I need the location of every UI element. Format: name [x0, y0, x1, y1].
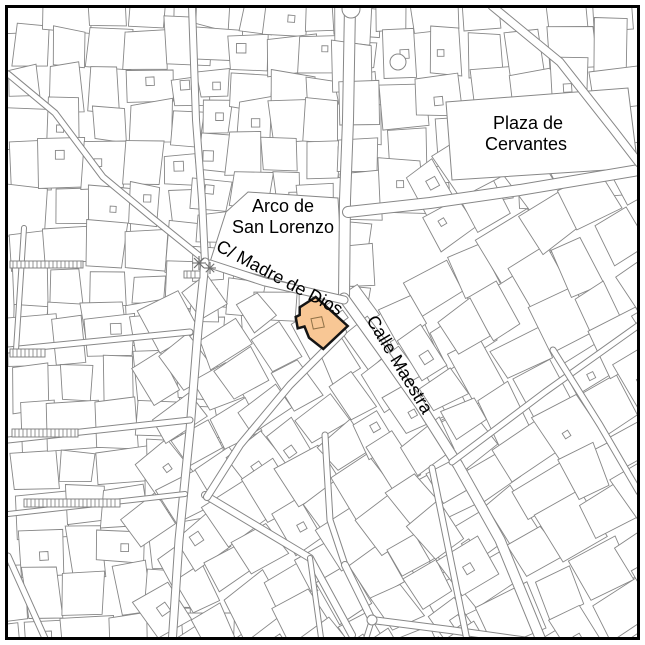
building-parcel: [225, 132, 261, 176]
building-parcel: [261, 137, 298, 171]
plaza-cervantes-label-line1: Plaza de: [493, 113, 563, 133]
building-parcel: [430, 26, 462, 76]
courtyard-detail: [437, 50, 444, 57]
courtyard-detail: [174, 161, 184, 171]
courtyard-detail: [144, 195, 152, 202]
arcade-hatch-strip: [12, 429, 78, 437]
building-parcel: [60, 616, 115, 645]
building-parcel: [0, 623, 22, 645]
courtyard-detail: [468, 0, 475, 4]
map-canvas: Plaza de Cervantes Arco de San Lorenzo C…: [0, 0, 645, 645]
round-building-icon: [390, 54, 406, 70]
courtyard-detail: [614, 0, 622, 1]
courtyard-detail: [180, 80, 190, 90]
courtyard-detail: [148, 0, 159, 6]
courtyard-detail: [434, 96, 443, 105]
building-parcel: [228, 34, 268, 71]
courtyard-detail: [236, 44, 246, 54]
highlighted-parcel-courtyard: [311, 317, 324, 329]
building-parcel: [382, 28, 416, 78]
round-building-icon: [367, 615, 377, 625]
building-parcel: [123, 30, 168, 70]
building-parcel: [86, 220, 128, 269]
building-parcel: [268, 100, 307, 143]
building-parcel: [53, 26, 85, 68]
building-parcel: [60, 365, 93, 401]
building-parcel: [56, 188, 89, 224]
courtyard-detail: [55, 150, 64, 159]
courtyard-detail: [110, 323, 121, 334]
cadastral-map: Plaza de Cervantes Arco de San Lorenzo C…: [0, 0, 645, 645]
building-parcel: [461, 0, 501, 31]
building-parcel: [543, 0, 589, 29]
courtyard-detail: [146, 77, 155, 86]
courtyard-detail: [322, 46, 328, 52]
courtyard-detail: [203, 151, 214, 162]
building-parcel: [129, 98, 172, 142]
building-parcel: [616, 254, 645, 314]
monument-base: [184, 271, 200, 278]
arcade-hatch-strip: [24, 499, 120, 507]
building-parcel: [190, 178, 232, 211]
building-parcel: [46, 400, 101, 451]
building-parcel: [303, 98, 338, 144]
building-parcel: [126, 70, 173, 102]
courtyard-detail: [251, 119, 259, 127]
courtyard-detail: [397, 181, 404, 188]
building-parcel: [307, 141, 343, 179]
arcade-hatch-strip: [10, 349, 45, 357]
building-parcel: [42, 226, 88, 264]
courtyard-detail: [213, 82, 221, 90]
arco-san-lorenzo-label-line2: San Lorenzo: [232, 217, 334, 237]
courtyard-detail: [288, 15, 295, 22]
building-parcel: [10, 450, 60, 489]
street-top-vertical: [344, 6, 350, 298]
building-parcel: [62, 571, 105, 615]
building-parcel: [125, 229, 168, 271]
plaza-cervantes-label-line2: Cervantes: [485, 134, 567, 154]
building-parcel: [81, 141, 127, 190]
courtyard-detail: [121, 544, 129, 552]
building-parcel: [90, 272, 127, 307]
building-parcel: [123, 141, 165, 185]
courtyard-detail: [216, 113, 224, 121]
building-parcel: [376, 0, 406, 31]
building-parcel: [594, 18, 627, 74]
building-parcel: [128, 0, 166, 28]
building-parcel: [87, 0, 126, 26]
building-parcel: [568, 641, 636, 645]
courtyard-detail: [110, 206, 116, 212]
courtyard-detail: [205, 185, 214, 195]
round-building-icon: [342, 0, 360, 18]
courtyard-detail: [39, 552, 48, 561]
arco-san-lorenzo-label-line1: Arco de: [252, 196, 314, 216]
courtyard-detail: [563, 84, 572, 93]
building-parcel: [59, 450, 95, 482]
building-parcel: [92, 106, 126, 143]
